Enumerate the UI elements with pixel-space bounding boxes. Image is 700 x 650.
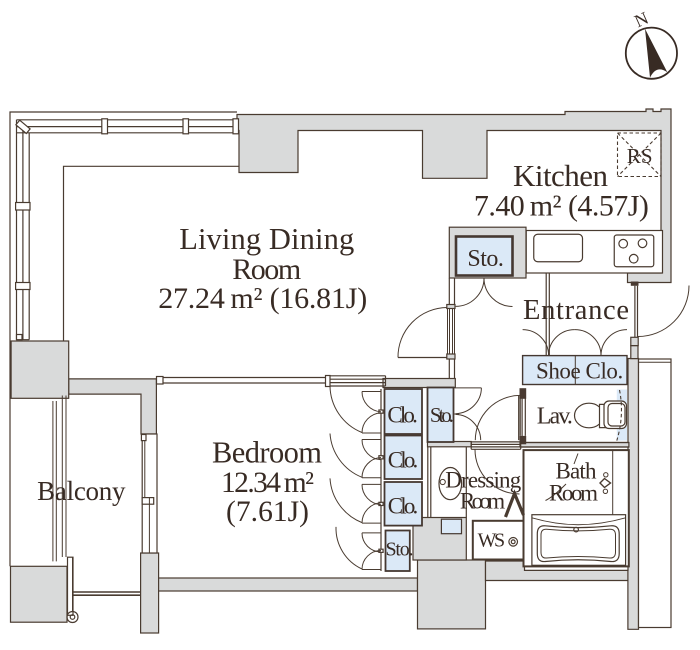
- svg-text:Sto.: Sto.: [430, 403, 454, 427]
- svg-text:Balcony: Balcony: [37, 476, 126, 506]
- svg-text:Room: Room: [460, 489, 505, 514]
- svg-text:(7.61J): (7.61J): [226, 496, 309, 528]
- svg-text:Room: Room: [549, 481, 598, 506]
- svg-text:27.24 m² (16.81J): 27.24 m² (16.81J): [158, 282, 367, 315]
- svg-text:Sto.: Sto.: [386, 539, 414, 561]
- svg-text:Shoe Clo.: Shoe Clo.: [536, 359, 623, 384]
- svg-text:RS: RS: [627, 144, 653, 168]
- svg-text:WS: WS: [478, 530, 506, 552]
- svg-text:7.40 m² (4.57J): 7.40 m² (4.57J): [474, 190, 649, 223]
- svg-text:Sto.: Sto.: [467, 246, 503, 272]
- svg-text:Lav.: Lav.: [537, 404, 573, 430]
- svg-text:Bedroom: Bedroom: [212, 436, 322, 470]
- svg-text:Entrance: Entrance: [523, 295, 629, 326]
- svg-text:Clo.: Clo.: [388, 448, 419, 473]
- svg-text:Kitchen: Kitchen: [513, 158, 609, 193]
- svg-text:Living Dining: Living Dining: [179, 222, 354, 256]
- svg-text:Clo.: Clo.: [387, 403, 418, 428]
- svg-text:12.34 m²: 12.34 m²: [221, 467, 314, 499]
- svg-text:Clo.: Clo.: [388, 494, 419, 519]
